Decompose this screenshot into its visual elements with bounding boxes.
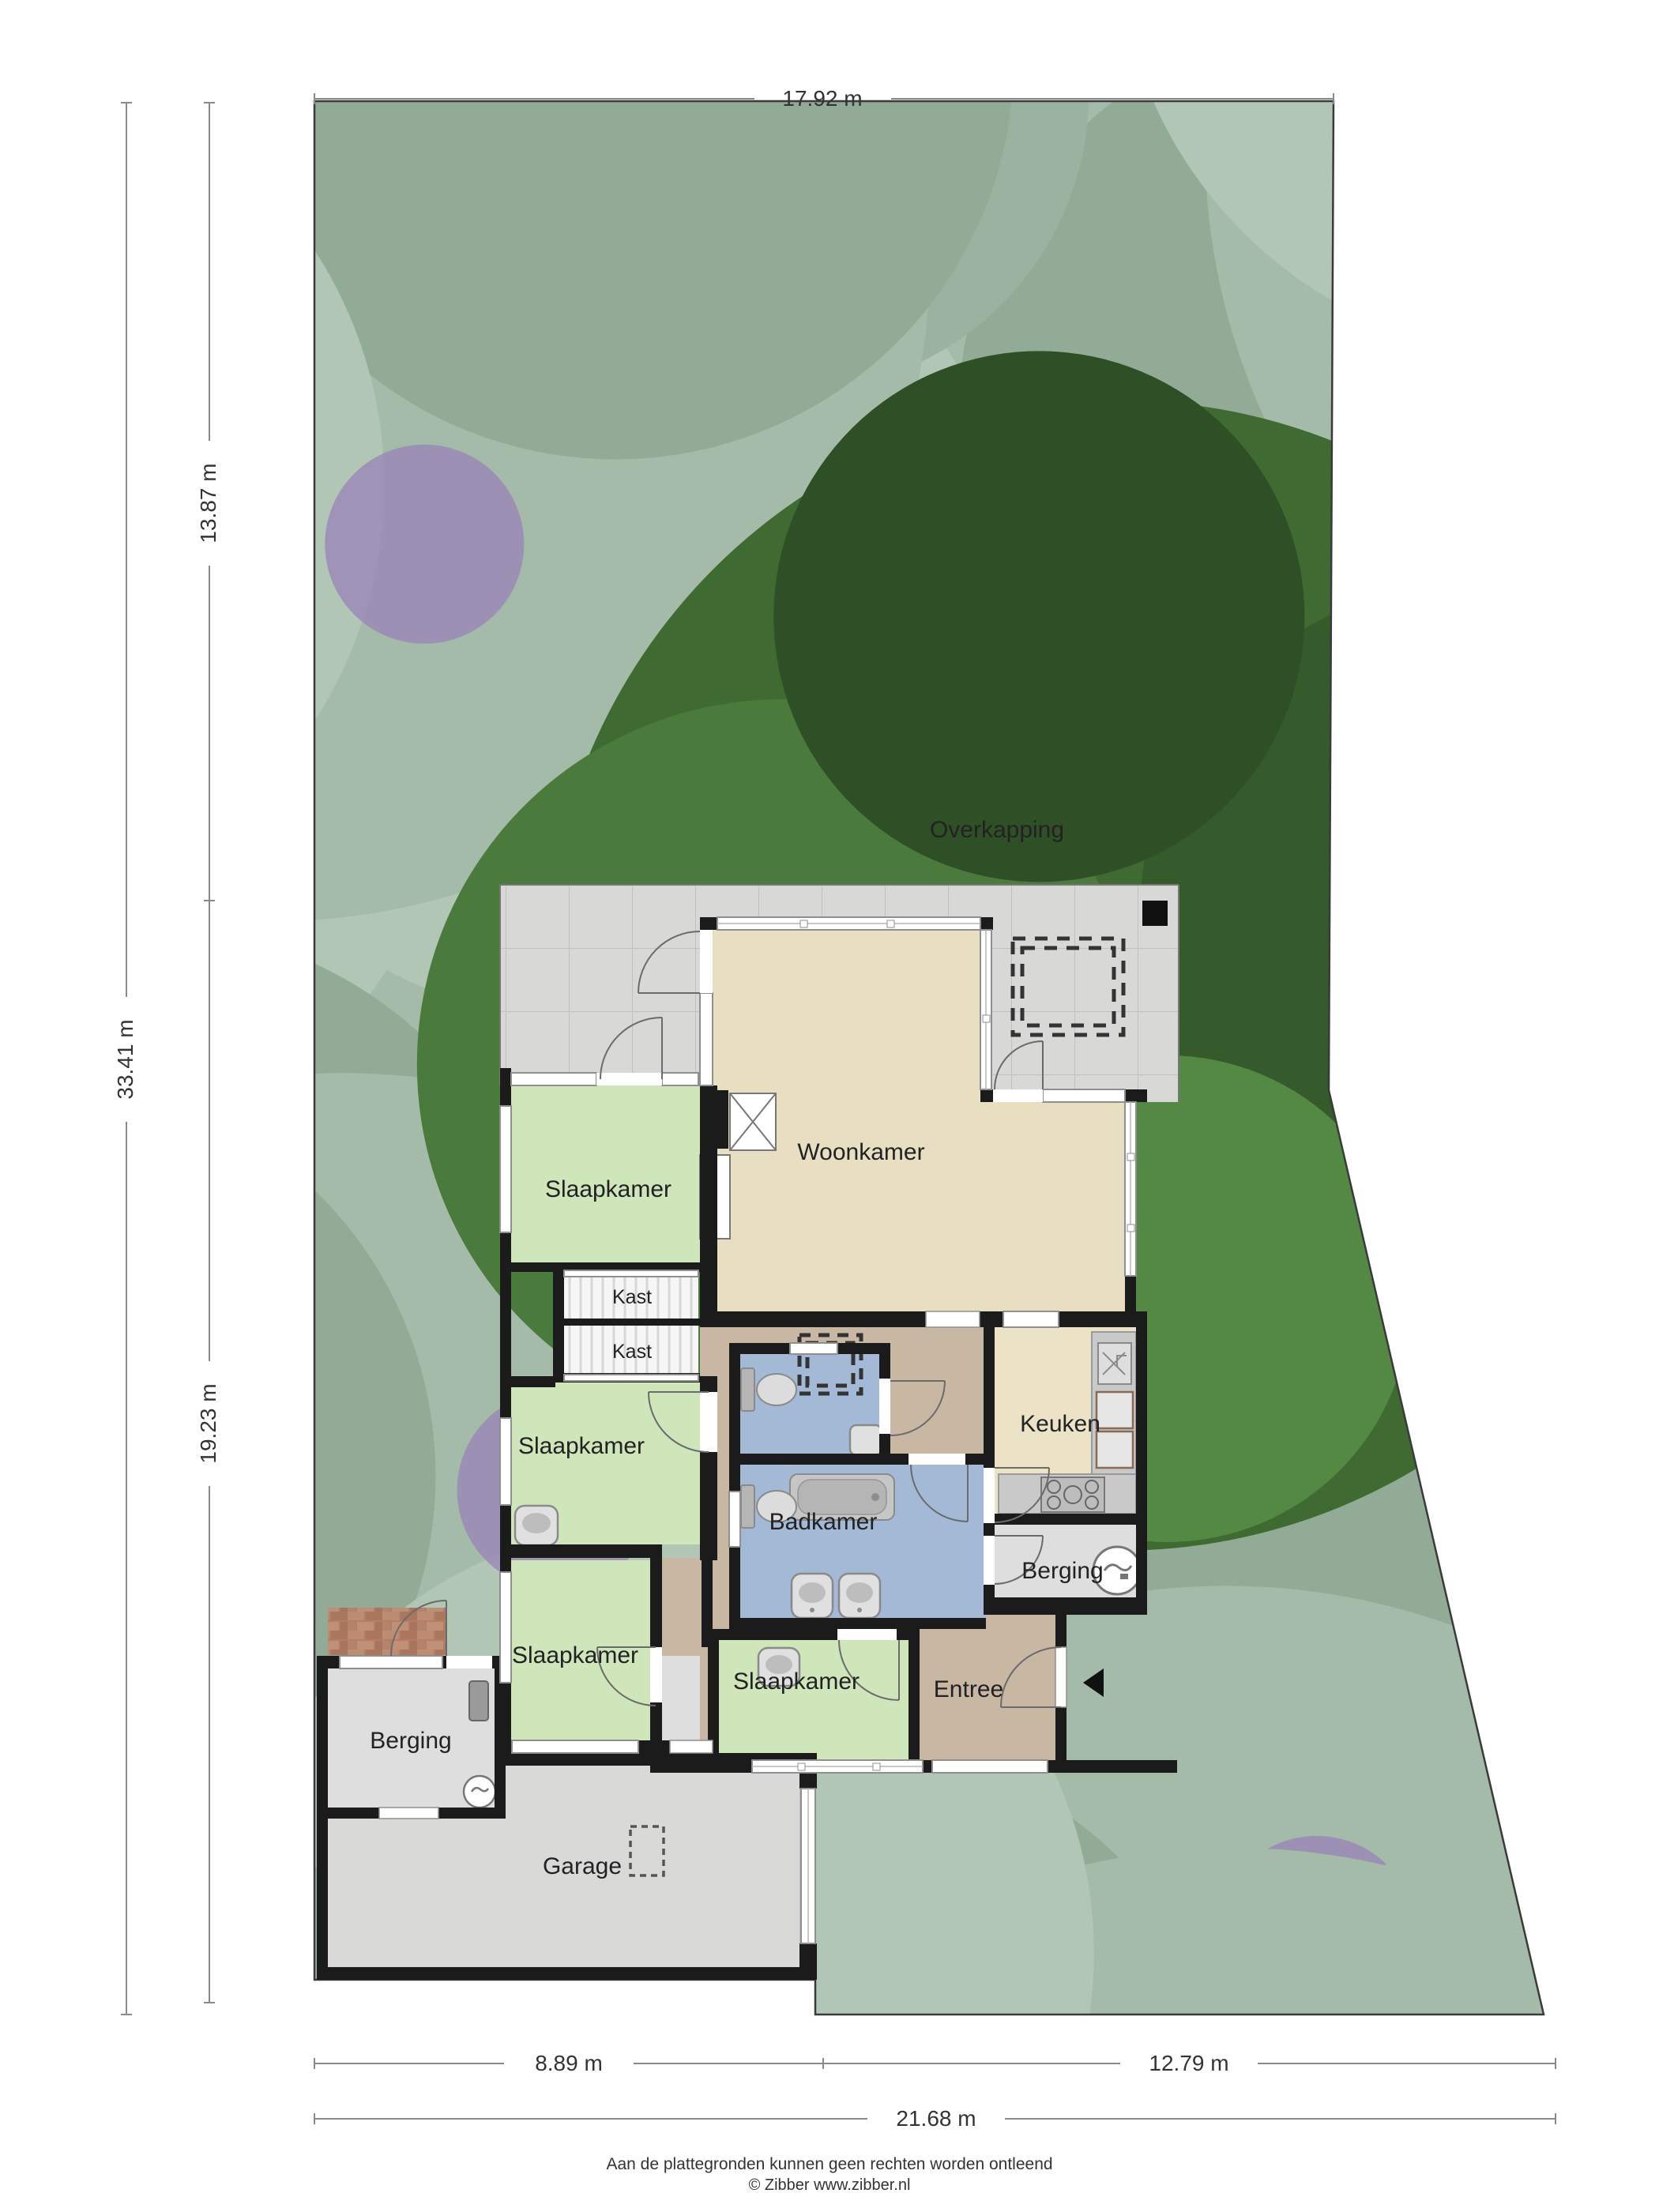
label-keuken: Keuken bbox=[1020, 1411, 1100, 1437]
window bbox=[790, 1343, 837, 1354]
window bbox=[729, 1492, 740, 1547]
window bbox=[700, 993, 713, 1085]
window bbox=[511, 1073, 596, 1085]
stove-icon bbox=[1041, 1477, 1104, 1512]
tree-icon bbox=[0, 0, 1554, 96]
window bbox=[717, 917, 980, 930]
wall-opening bbox=[926, 1311, 980, 1327]
door-leaf-icon bbox=[469, 1681, 488, 1721]
window bbox=[512, 1740, 638, 1753]
bush-icon bbox=[0, 0, 40, 1842]
footer-credit: © Zibber www.zibber.nl bbox=[749, 2176, 911, 2194]
label-kast-2: Kast bbox=[612, 1341, 652, 1363]
boiler-icon bbox=[464, 1776, 495, 1808]
tree-icon bbox=[1371, 0, 1659, 107]
chimney-icon bbox=[1142, 901, 1168, 926]
sink-icon bbox=[515, 1506, 558, 1545]
dimension-left-total: 33.41 m bbox=[113, 103, 137, 2014]
label-garage: Garage bbox=[543, 1853, 622, 1879]
dimension-bottom-right-label: 12.79 m bbox=[1149, 2051, 1228, 2075]
tree-icon bbox=[0, 0, 276, 418]
room-slaapkamer4-floor bbox=[719, 1640, 908, 1760]
closet-front bbox=[564, 1270, 698, 1277]
label-badkamer: Badkamer bbox=[769, 1509, 878, 1535]
label-kast-1: Kast bbox=[612, 1286, 652, 1308]
dimension-bottom-right: 12.79 m bbox=[823, 2051, 1556, 2075]
label-slaapkamer-3: Slaapkamer bbox=[512, 1642, 638, 1668]
window bbox=[500, 1106, 511, 1232]
label-slaapkamer-2: Slaapkamer bbox=[518, 1433, 645, 1459]
dimension-bottom-left: 8.89 m bbox=[314, 2051, 823, 2075]
dimension-bottom-total: 21.68 m bbox=[314, 2106, 1556, 2131]
label-berging-voor: Berging bbox=[370, 1728, 451, 1754]
dimension-left-total-label: 33.41 m bbox=[113, 1019, 137, 1099]
terrace-floor-left bbox=[500, 885, 705, 1085]
dimension-top-label: 17.92 m bbox=[782, 86, 862, 111]
label-slaapkamer-4: Slaapkamer bbox=[733, 1668, 860, 1695]
wall-opening bbox=[670, 1740, 713, 1753]
kitchen-appliance-2 bbox=[1097, 1431, 1133, 1468]
sink-icon bbox=[839, 1574, 880, 1618]
window bbox=[1043, 1089, 1125, 1102]
kitchen-appliance-1 bbox=[1097, 1392, 1133, 1428]
berging-brick-pad bbox=[328, 1608, 446, 1655]
dimension-left-upper-label: 13.87 m bbox=[196, 463, 220, 543]
window bbox=[752, 1760, 923, 1773]
garage-door bbox=[801, 1789, 815, 1943]
sink-icon bbox=[850, 1425, 882, 1455]
floor-plan-page: Woonkamer Slaapkamer Kast Kast Slaapkame… bbox=[0, 0, 1659, 2212]
window bbox=[980, 930, 991, 1089]
tree-icon bbox=[0, 0, 57, 1896]
tree-icon bbox=[1627, 0, 1659, 922]
dimension-bottom-total-label: 21.68 m bbox=[896, 2106, 976, 2131]
window bbox=[500, 1418, 511, 1505]
window bbox=[500, 1572, 511, 1683]
window bbox=[1003, 1311, 1059, 1327]
sink-icon bbox=[792, 1574, 833, 1618]
window bbox=[340, 1656, 442, 1668]
label-slaapkamer-1: Slaapkamer bbox=[545, 1176, 671, 1202]
label-woonkamer: Woonkamer bbox=[797, 1139, 924, 1165]
wall-opening bbox=[379, 1808, 438, 1819]
label-overkapping: Overkapping bbox=[930, 817, 1064, 843]
closet-front bbox=[564, 1375, 698, 1381]
dimension-left-lower: 19.23 m bbox=[196, 901, 220, 2003]
window bbox=[662, 1073, 698, 1085]
label-entree: Entree bbox=[934, 1676, 1003, 1702]
floor-plan-svg: Woonkamer Slaapkamer Kast Kast Slaapkame… bbox=[0, 0, 1659, 2212]
corridor-floor-lower bbox=[662, 1656, 700, 1740]
tree-icon bbox=[0, 109, 44, 1951]
dimension-left-upper: 13.87 m bbox=[196, 103, 220, 901]
label-berging-achter: Berging bbox=[1021, 1558, 1103, 1584]
bush-icon bbox=[0, 0, 207, 1760]
dimension-left-lower-label: 19.23 m bbox=[196, 1383, 220, 1463]
footer-disclaimer: Aan de plattegronden kunnen geen rechten… bbox=[606, 2155, 1052, 2173]
window bbox=[932, 1760, 1048, 1773]
dimension-bottom-left-label: 8.89 m bbox=[535, 2051, 603, 2075]
window bbox=[1125, 1102, 1136, 1276]
